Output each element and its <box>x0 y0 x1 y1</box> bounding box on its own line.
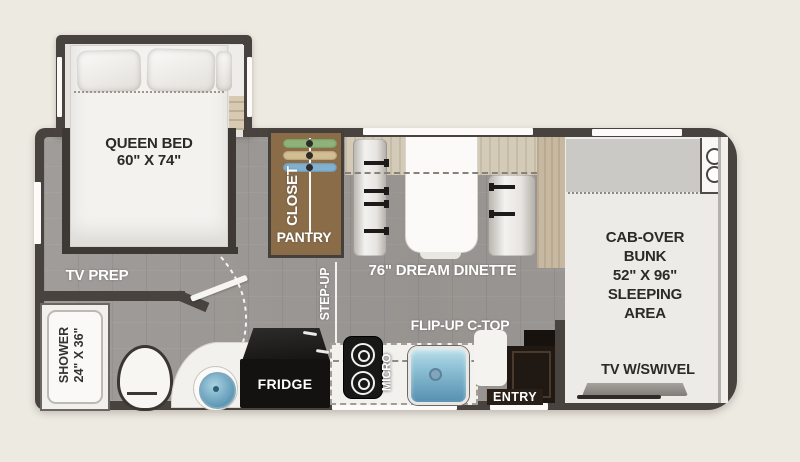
window-slideout-left <box>57 57 62 117</box>
entry-label-box: ENTRY <box>487 389 543 405</box>
seat-belt <box>491 185 515 189</box>
bed-fold-line <box>74 91 224 93</box>
bedside-wardrobe <box>229 96 244 130</box>
bunk-label-line1: CAB-OVER <box>575 228 715 247</box>
rv-floor-plan: QUEEN BED 60" X 74" TV PREP CLOSET PANTR… <box>0 0 800 462</box>
bunk-label-line5: AREA <box>575 304 715 323</box>
seat-belt <box>364 202 387 206</box>
shower-label: SHOWER 24" X 36" <box>57 320 89 390</box>
cab-front-strip <box>721 137 728 403</box>
bunk-label-line3: 52" X 96" <box>575 266 715 285</box>
bunk-dotted-line <box>568 192 698 194</box>
entry-side-wall <box>555 320 565 403</box>
hanger-green <box>283 139 337 148</box>
cab-over-bunk-label: CAB-OVER BUNK 52" X 96" SLEEPING AREA <box>575 228 715 323</box>
seat-belt <box>364 229 387 233</box>
dinette-side-panel <box>537 137 565 268</box>
window-left-wall <box>34 182 41 244</box>
dinette-bench-left <box>353 139 387 256</box>
entry-counter-end <box>474 330 507 386</box>
micro-label: MICRO <box>382 344 395 402</box>
entry-step-upper <box>524 330 556 346</box>
dinette-slide-line <box>345 172 537 174</box>
seat-belt <box>364 189 387 193</box>
bunk-label-line4: SLEEPING <box>575 285 715 304</box>
pillow <box>76 49 141 93</box>
bunk-head-shelf <box>566 139 700 192</box>
bunk-label-line2: BUNK <box>575 247 715 266</box>
entry-label: ENTRY <box>493 390 537 404</box>
closet-label: CLOSET <box>284 161 302 231</box>
bed-frame-left <box>62 128 70 254</box>
seat-belt <box>491 212 515 216</box>
pantry-label: PANTRY <box>270 229 338 245</box>
step-edge <box>335 262 337 348</box>
dinette-label: 76" DREAM DINETTE <box>345 262 540 279</box>
window-top-bunk <box>592 129 682 136</box>
queen-bed-label: QUEEN BED 60" X 74" <box>70 135 228 169</box>
shower-label-line1: SHOWER <box>57 320 72 390</box>
dinette-table <box>405 137 478 253</box>
window-slideout-right <box>247 57 252 117</box>
hanger-tan <box>283 151 337 160</box>
pillow <box>216 51 232 91</box>
burner <box>351 371 375 395</box>
tv-swivel-mount <box>577 395 661 399</box>
seat-belt <box>364 161 387 165</box>
step-up-label: STEP-UP <box>318 264 332 324</box>
fridge-label: FRIDGE <box>258 376 313 392</box>
shower-label-line2: 24" X 36" <box>72 320 87 390</box>
bed-frame-right <box>228 128 236 254</box>
pillow <box>146 48 215 93</box>
tv-swivel-label: TV W/SWIVEL <box>578 362 718 378</box>
bathroom-wall <box>43 291 185 301</box>
queen-bed-label-line2: 60" X 74" <box>70 152 228 169</box>
window-top-dinette <box>363 128 533 135</box>
dinette-table-pedestal <box>420 252 461 259</box>
kitchen-sink-drain <box>429 368 442 381</box>
toilet-seat-line <box>127 392 157 395</box>
queen-bed-label-line1: QUEEN BED <box>70 135 228 152</box>
fridge: FRIDGE <box>240 359 330 408</box>
toilet <box>117 345 173 411</box>
tv-prep-label: TV PREP <box>52 267 142 284</box>
burner <box>351 343 375 367</box>
vanity-sink-drain <box>213 386 219 392</box>
